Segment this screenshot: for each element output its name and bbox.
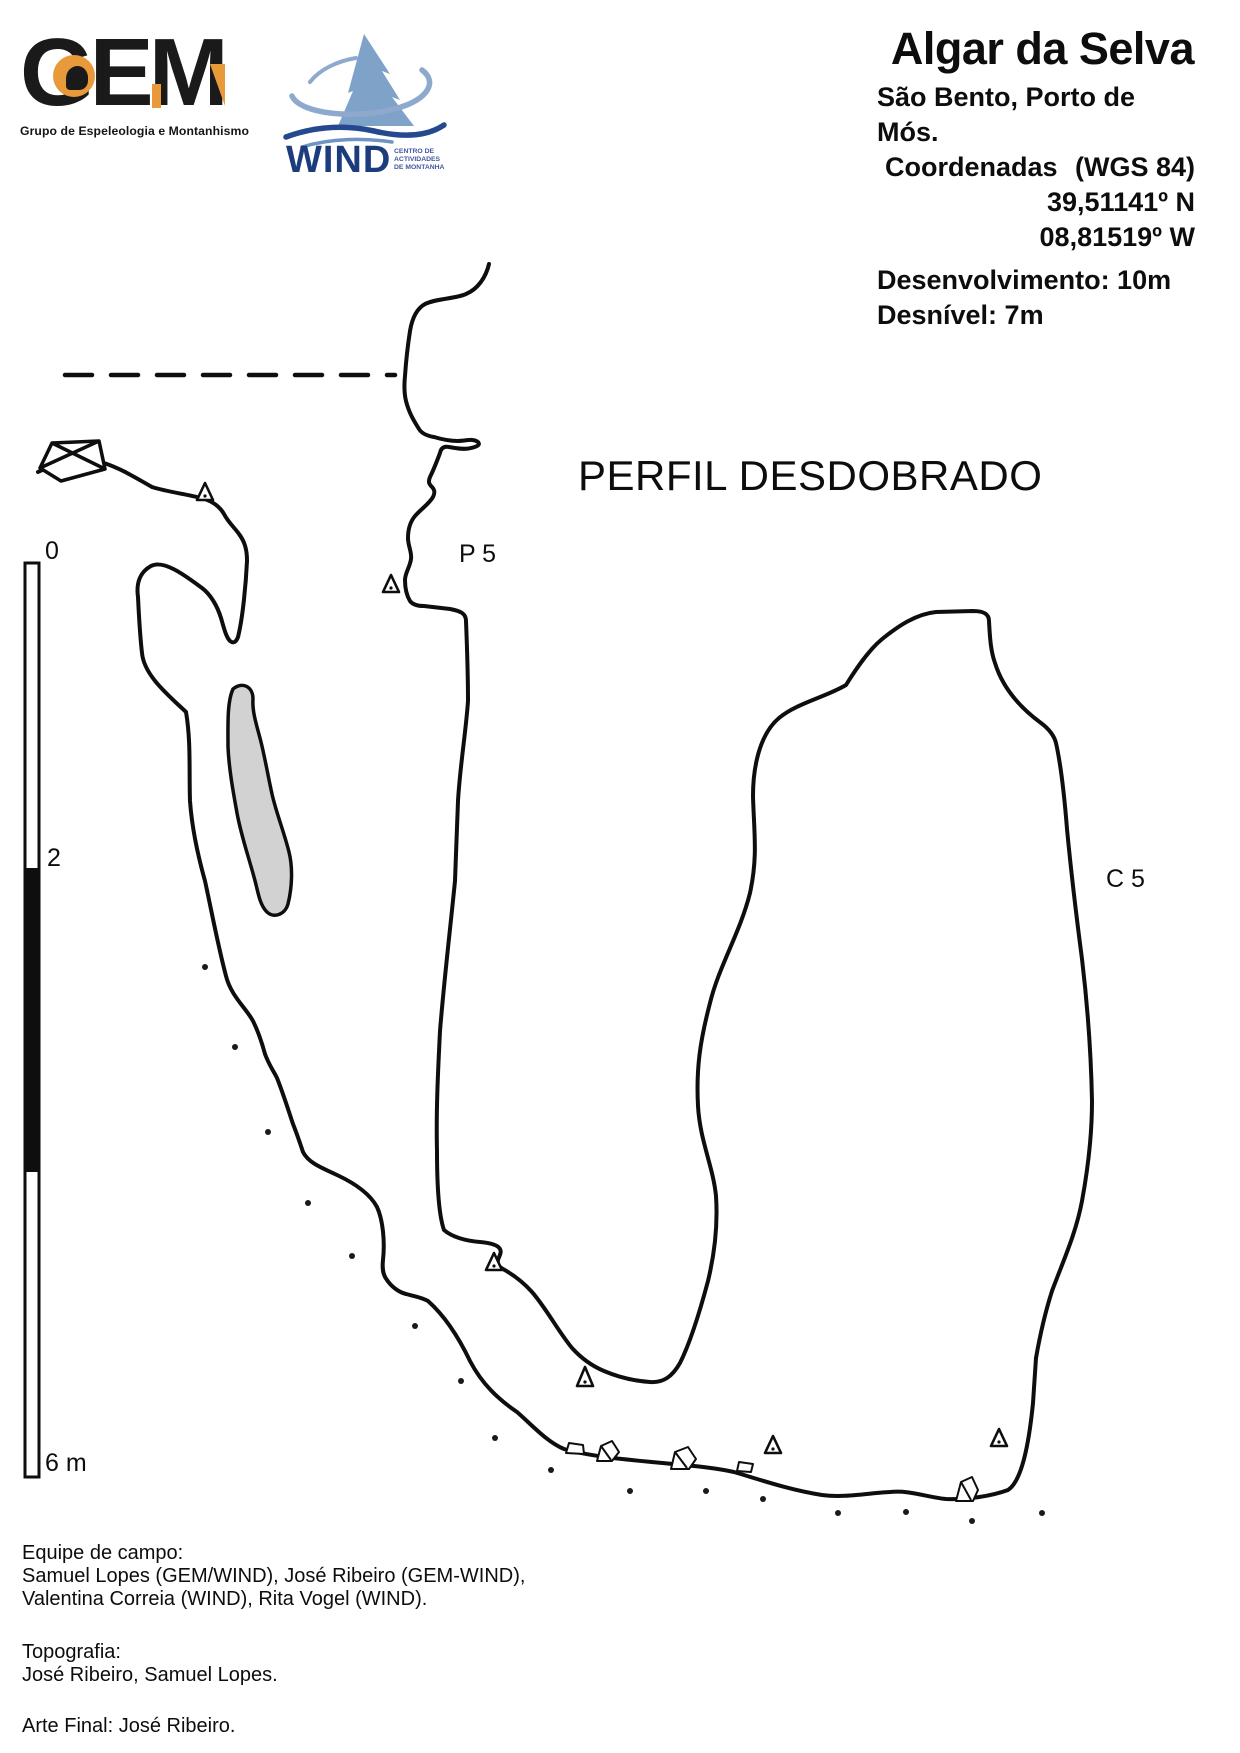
final-art-credit: Arte Final: José Ribeiro.	[22, 1715, 525, 1738]
survey-sheet: GEM Grupo de Espeleologia e Montanhismo …	[0, 0, 1240, 1753]
datum-label: (WGS 84)	[1075, 150, 1195, 185]
gem-logo: GEM Grupo de Espeleologia e Montanhismo	[20, 30, 255, 138]
gem-logo-tagline: Grupo de Espeleologia e Montanhismo	[20, 124, 255, 138]
team-label: Equipe de campo:	[22, 1542, 525, 1565]
wind-logo-name: WIND	[286, 139, 391, 176]
coordinates-row: Coordenadas (WGS 84)	[877, 150, 1195, 185]
wind-logo-subtitle: ACTIVIDADES	[394, 156, 441, 163]
wind-wave-icon	[286, 125, 444, 137]
topography-label: Topografia:	[22, 1641, 525, 1664]
development-value: Desenvolvimento: 10m	[877, 263, 1195, 298]
team-line: Valentina Correia (WIND), Rita Vogel (WI…	[22, 1588, 525, 1611]
cave-location: São Bento, Porto de Mós.	[877, 80, 1195, 150]
gem-logo-accent	[152, 84, 161, 108]
title-block: Algar da Selva	[891, 24, 1194, 74]
station-label-c5: C 5	[1106, 865, 1145, 894]
scale-label-0: 0	[45, 537, 59, 566]
wind-swoosh-icon	[310, 58, 356, 82]
profile-view-label: PERFIL DESDOBRADO	[578, 452, 1042, 500]
topography-names: José Ribeiro, Samuel Lopes.	[22, 1664, 525, 1687]
coordinates-label: Coordenadas	[877, 150, 1058, 185]
scale-bar-black-segment	[25, 868, 39, 1172]
wind-logo-subtitle: CENTRO DE	[394, 148, 434, 155]
scale-bar	[25, 563, 39, 1477]
page-title: Algar da Selva	[891, 24, 1194, 74]
sediment-pocket-shape	[228, 685, 292, 915]
survey-station-markers	[197, 483, 1007, 1453]
latitude-value: 39,51141º N	[877, 185, 1195, 220]
entrance-boulder-icon	[40, 441, 105, 481]
credits-block: Equipe de campo: Samuel Lopes (GEM/WIND)…	[22, 1542, 525, 1738]
gem-caver-profile-icon	[66, 66, 88, 90]
scale-label-2: 2	[47, 844, 61, 873]
cave-outline-right-wall	[404, 264, 1092, 1382]
wind-logo-subtitle: DE MONTANHA	[394, 164, 445, 171]
depth-value: Desnível: 7m	[877, 298, 1195, 333]
wind-logo: WIND CENTRO DE ACTIVIDADES DE MONTANHA	[276, 24, 458, 176]
cave-outline-left-wall	[38, 460, 1036, 1499]
cave-info-block: São Bento, Porto de Mós. Coordenadas (WG…	[877, 80, 1195, 333]
debris-dots	[202, 964, 1045, 1524]
station-label-p5: P 5	[459, 540, 496, 569]
scale-label-6m: 6 m	[45, 1449, 87, 1478]
longitude-value: 08,81519º W	[877, 220, 1195, 255]
team-line: Samuel Lopes (GEM/WIND), José Ribeiro (G…	[22, 1565, 525, 1588]
